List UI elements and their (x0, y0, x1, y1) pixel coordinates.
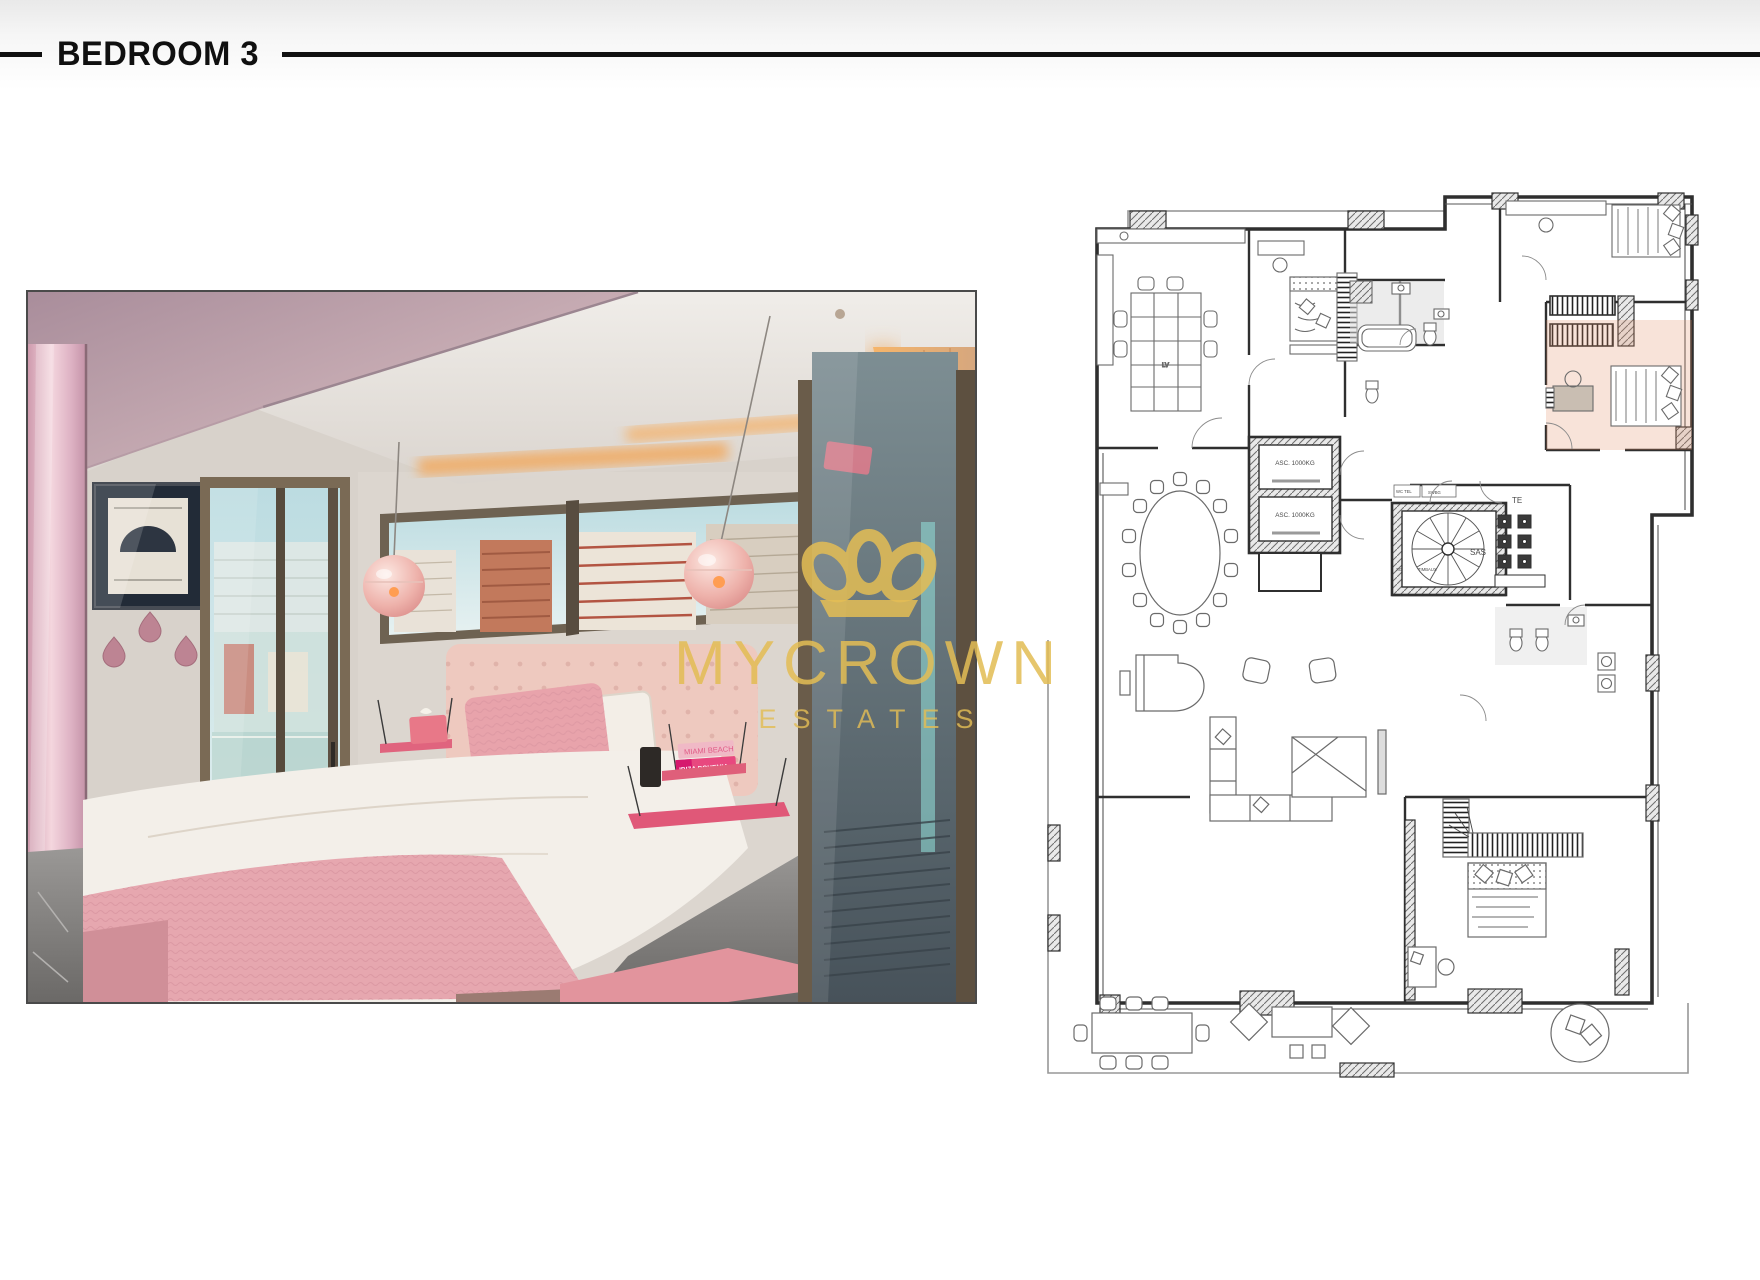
section-header: BEDROOM 3 (0, 34, 1760, 74)
terrace-furniture (1074, 997, 1609, 1069)
wall-switch (640, 747, 661, 787)
outdoor-dining-table (1092, 1013, 1192, 1053)
kitchen-island (1131, 293, 1201, 411)
ceiling-spotlight (835, 309, 845, 319)
bedroom-photo-art: MIAMI BEACH IBIZA BOHEMIA (28, 292, 975, 1002)
armchair (1242, 657, 1271, 685)
pendant-globe-left (363, 555, 425, 617)
header-rule (282, 52, 1760, 57)
brochure-page: { "page": {"background": "#ffffff", "top… (0, 0, 1760, 1280)
floor-plan: LV ASC. 1000KG ASC. 1000KG (1040, 185, 1700, 1080)
armchair (1308, 657, 1336, 684)
console (1100, 483, 1128, 495)
wall-artwork (94, 484, 202, 608)
page-title: BEDROOM 3 (57, 35, 259, 74)
elevator-2-label: ASC. 1000KG (1275, 512, 1315, 519)
lounge-chair (1333, 1008, 1370, 1045)
coffee-table-rug (1292, 737, 1366, 797)
timbaux-label: TIMBAUX (1418, 567, 1437, 572)
bedroom-photo: MIAMI BEACH IBIZA BOHEMIA (28, 292, 975, 1002)
elevator-1-label: ASC. 1000KG (1275, 460, 1315, 467)
sg-label: SG (1396, 567, 1402, 572)
swbg-label: SWBG (1428, 490, 1441, 495)
pendant-globe-right (684, 539, 754, 609)
right-glass-door (798, 347, 975, 1002)
window-mullion (566, 500, 579, 636)
sas-label: SAS (1470, 548, 1486, 557)
floor-plan-drawing: LV ASC. 1000KG ASC. 1000KG (1040, 185, 1700, 1080)
bedroom3-desk (1553, 386, 1593, 411)
tissue-box (409, 715, 448, 745)
lounge-table (1272, 1007, 1332, 1037)
spiral-staircase (1392, 503, 1506, 595)
bookshelf (1550, 296, 1615, 315)
library-shelf-h (1468, 833, 1583, 857)
header-left-dash (0, 52, 42, 57)
kitchen-label: LV (1162, 363, 1169, 369)
te-label: TE (1512, 496, 1522, 505)
desk (1408, 947, 1436, 987)
wc-tel-label: WC TEL (1396, 489, 1412, 494)
